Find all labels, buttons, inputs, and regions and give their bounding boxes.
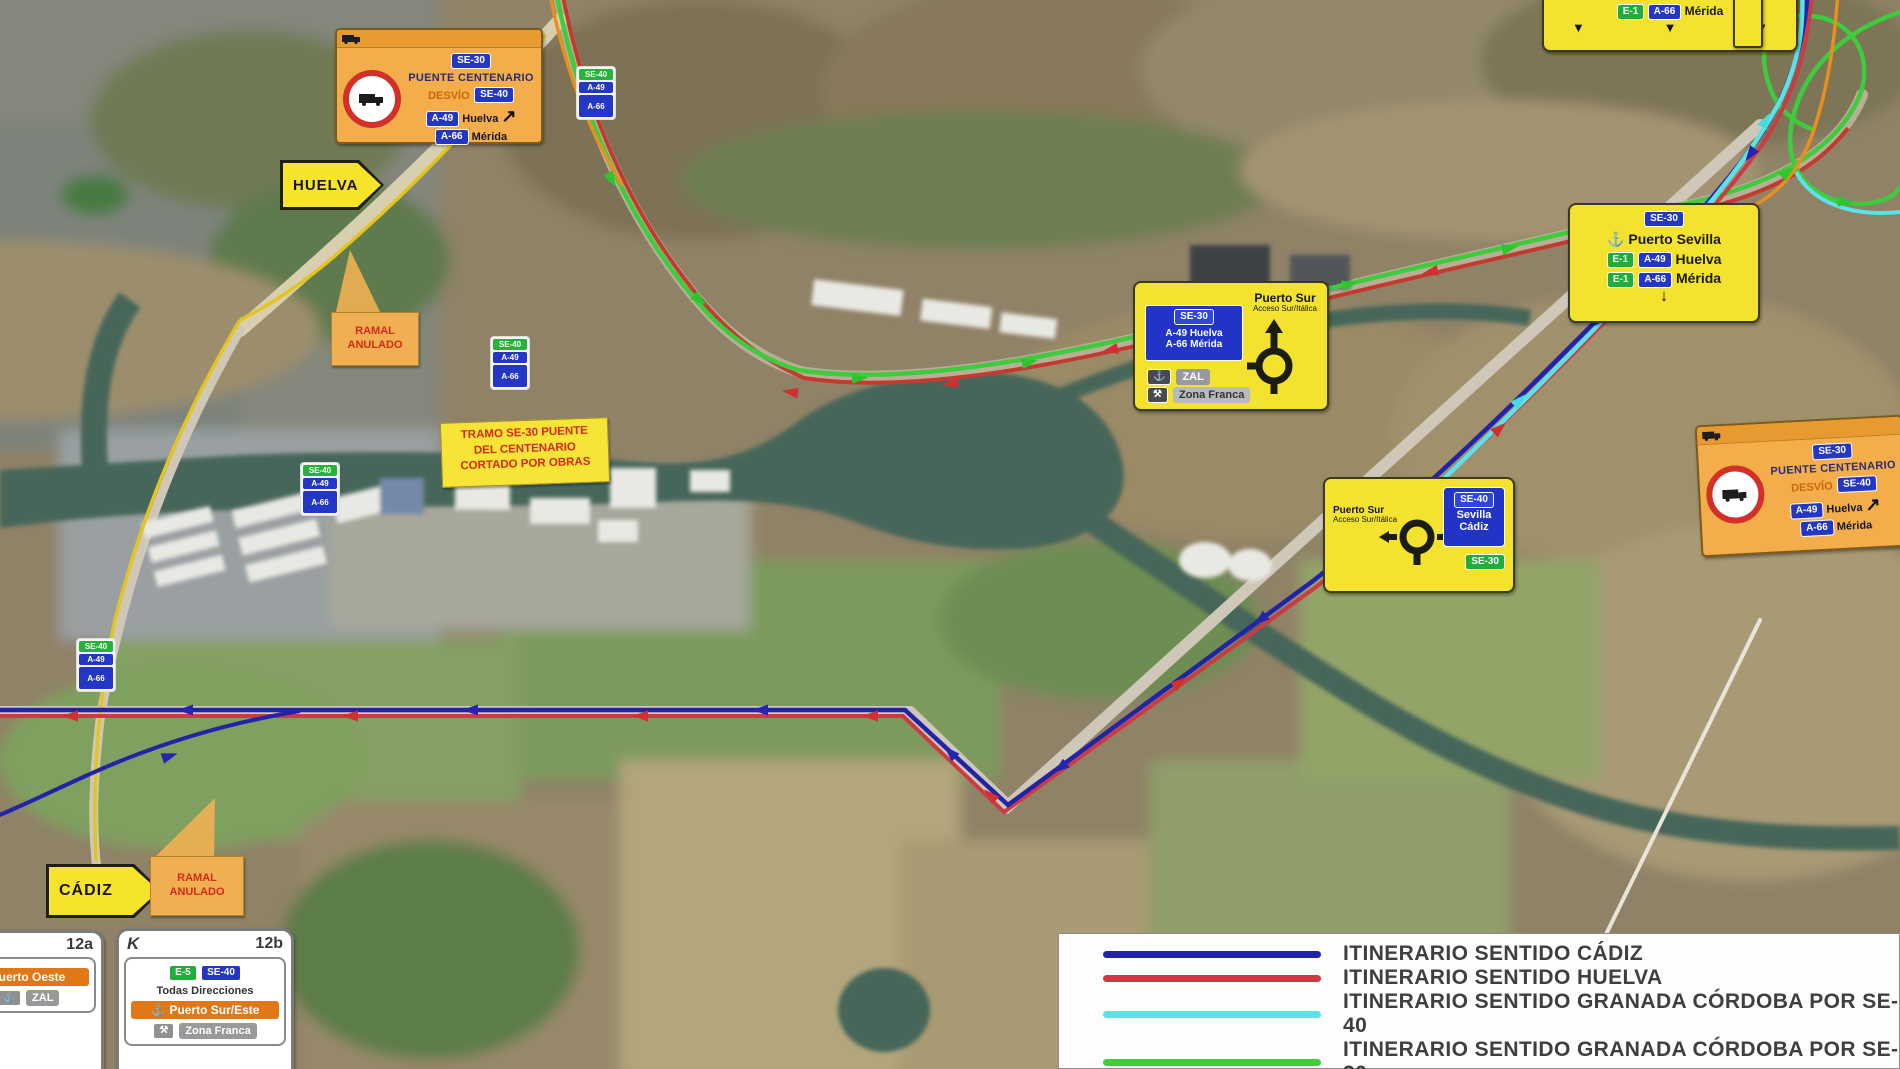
a49-huelva-row: A-49 Huelva: [1146, 328, 1242, 339]
roundabout-ahead-icon: [1243, 319, 1305, 397]
zona-franca-label: Zona Franca: [1173, 387, 1250, 403]
no-trucks-icon: [1705, 464, 1766, 525]
ship-icon: ⚓: [1147, 369, 1171, 385]
dest-merida: Mérida: [472, 131, 507, 143]
a49-mini: A-49: [303, 478, 337, 489]
a49-mini: A-49: [579, 82, 613, 93]
huelva-label: HUELVA: [283, 177, 358, 194]
puerto-sevilla-title: Puerto Sevilla: [1628, 231, 1721, 247]
a49-shield: A-49: [426, 111, 460, 127]
detour-map: SE-30 PUENTE CENTENARIO DESVÍO SE-40 A-4…: [0, 0, 1900, 1069]
legend-row-granada-se30: ITINERARIO SENTIDO GRANADA CÓRDOBA POR S…: [1103, 1038, 1899, 1069]
se40-shield: SE-40: [201, 965, 241, 981]
ship-icon: ⚓: [0, 990, 21, 1006]
puerto-sur-subtitle: Acceso Sur/Itálica: [1253, 305, 1317, 314]
detour-sign-right: SE-30 PUENTE CENTENARIO DESVÍO SE-40 A-4…: [1695, 415, 1900, 558]
legend-row-granada-se40: ITINERARIO SENTIDO GRANADA CÓRDOBA POR S…: [1103, 990, 1899, 1038]
truck-icon: [342, 33, 362, 44]
se40-mini: SE-40: [579, 69, 613, 80]
zal-label: ZAL: [1176, 369, 1209, 385]
exit-panel-12b: K 12b E-5 SE-40 Todas Direcciones ⚓ Puer…: [116, 928, 294, 1069]
legend-row-cadiz: ITINERARIO SENTIDO CÁDIZ: [1103, 942, 1899, 966]
a66-shield: A-66: [435, 129, 469, 145]
legend-label-granada-se40: ITINERARIO SENTIDO GRANADA CÓRDOBA POR S…: [1343, 990, 1899, 1038]
dest-merida: Mérida: [1685, 4, 1724, 18]
direction-arrow-ne: ↗: [1865, 494, 1881, 516]
puerto-sur-sign-south: Puerto Sur Acceso Sur/Itálica SE-40 Sevi…: [1323, 477, 1515, 593]
e1-shield: E-1: [1607, 252, 1635, 268]
dest-huelva: Huelva: [1676, 251, 1722, 267]
legend-swatch-granada-se40: [1103, 1011, 1321, 1018]
ship-icon: ⚓: [151, 1003, 166, 1017]
exit-panel-12a: 12a Puerto Oeste ⚓ ZAL: [0, 930, 104, 1069]
sign-title: PUENTE CENTENARIO: [407, 72, 535, 84]
direction-arrow-ne: ↗: [501, 106, 516, 127]
a49-shield: A-49: [1638, 252, 1672, 268]
puerto-sur-title: Puerto Sur: [1253, 291, 1317, 305]
a49-mini: A-49: [79, 654, 113, 665]
a49-mini: A-49: [493, 352, 527, 363]
dest-huelva: Huelva: [462, 113, 498, 125]
legend-swatch-huelva: [1103, 975, 1321, 982]
truck-icon: [1702, 429, 1723, 441]
legend-swatch-granada-se30: [1103, 1059, 1321, 1066]
route-marker-stack: SE-40 A-49 A-66: [76, 638, 116, 692]
se40-shield: SE-40: [1454, 492, 1494, 508]
se30-shield: SE-30: [451, 53, 491, 69]
exit-number: 12b: [255, 935, 283, 953]
dest-merida: Mérida: [1837, 519, 1873, 533]
ramal-anulado-text: RAMAL ANULADO: [166, 872, 228, 900]
exit-number: 12a: [66, 936, 93, 954]
legend-row-huelva: ITINERARIO SENTIDO HUELVA: [1103, 966, 1899, 990]
se40-shield: SE-40: [1837, 475, 1878, 493]
route-marker-stack: SE-40 A-49 A-66: [300, 462, 340, 516]
e5-shield: E-5: [169, 965, 197, 981]
panel-glyph: K: [127, 934, 139, 954]
a66-mini: A-66: [79, 667, 113, 689]
a66-mini: A-66: [579, 95, 613, 117]
legend-label-huelva: ITINERARIO SENTIDO HUELVA: [1343, 966, 1663, 990]
dest-merida: Mérida: [1676, 270, 1721, 286]
blue-panel: SE-30 A-49 Huelva A-66 Mérida: [1145, 305, 1243, 361]
dest-huelva: Huelva: [1826, 502, 1863, 516]
down-arrow: ↓: [1570, 288, 1758, 303]
no-trucks-icon: [343, 70, 401, 128]
desvio-label: DESVÍO: [428, 90, 470, 102]
a49-shield: A-49: [1789, 502, 1823, 520]
dest-cadiz: Cádiz: [1444, 521, 1504, 533]
legend-label-granada-se30: ITINERARIO SENTIDO GRANADA CÓRDOBA POR S…: [1343, 1038, 1899, 1069]
se30-shield: SE-30: [1644, 211, 1684, 227]
puerto-sur-sign-north: Puerto Sur Acceso Sur/Itálica SE-30 A-49…: [1133, 281, 1329, 411]
e1-shield: E-1: [1617, 4, 1645, 20]
a66-mini: A-66: [493, 365, 527, 387]
se30-shield: SE-30: [1812, 442, 1853, 460]
zona-franca-label: Zona Franca: [179, 1023, 256, 1039]
desvio-label: DESVÍO: [1791, 480, 1833, 494]
factory-icon: ⚒: [1147, 387, 1168, 403]
ramal-anulado-note-bottom: RAMAL ANULADO: [150, 856, 244, 916]
se30-shield: SE-30: [1174, 309, 1214, 325]
route-marker-stack: SE-40 A-49 A-66: [490, 336, 530, 390]
cadiz-label: CÁDIZ: [49, 882, 113, 900]
e1-shield: E-1: [1607, 272, 1635, 288]
a66-merida-row: A-66 Mérida: [1146, 339, 1242, 350]
huelva-direction-sign: HUELVA: [280, 160, 384, 210]
legend: ITINERARIO SENTIDO CÁDIZ ITINERARIO SENT…: [1058, 933, 1900, 1069]
se30-shield: SE-30: [1465, 554, 1505, 570]
tramo-cortado-note: TRAMO SE-30 PUENTE DEL CENTENARIO CORTAD…: [440, 417, 610, 488]
small-yellow-panel: [1733, 0, 1763, 48]
se40-mini: SE-40: [303, 465, 337, 476]
ramal-anulado-note-top: RAMAL ANULADO: [331, 312, 419, 366]
ship-icon: ⚓: [1607, 231, 1624, 247]
sign-header: [337, 30, 541, 48]
ramal-anulado-text: RAMAL ANULADO: [345, 325, 405, 353]
blue-panel: SE-40 Sevilla Cádiz: [1443, 487, 1505, 547]
route-marker-stack: SE-40 A-49 A-66: [576, 66, 616, 120]
detour-sign-left: SE-30 PUENTE CENTENARIO DESVÍO SE-40 A-4…: [335, 28, 543, 144]
puerto-oeste-label: Puerto Oeste: [0, 970, 65, 984]
se40-mini: SE-40: [79, 641, 113, 652]
todas-direcciones-label: Todas Direcciones: [131, 985, 279, 997]
puerto-sevilla-sign: SE-30 ⚓ Puerto Sevilla E-1 A-49 Huelva E…: [1568, 203, 1760, 323]
legend-label-cadiz: ITINERARIO SENTIDO CÁDIZ: [1343, 942, 1643, 966]
se40-shield: SE-40: [474, 87, 514, 103]
legend-swatch-cadiz: [1103, 951, 1321, 958]
dest-sevilla: Sevilla: [1444, 509, 1504, 521]
a66-shield: A-66: [1800, 519, 1834, 537]
zal-label: ZAL: [26, 990, 59, 1006]
a66-shield: A-66: [1648, 4, 1682, 20]
puerto-sur-este-label: Puerto Sur/Este: [169, 1003, 259, 1017]
a66-mini: A-66: [303, 491, 337, 513]
factory-icon: ⚒: [153, 1023, 174, 1039]
cadiz-direction-sign: CÁDIZ: [46, 864, 162, 918]
se40-mini: SE-40: [493, 339, 527, 350]
